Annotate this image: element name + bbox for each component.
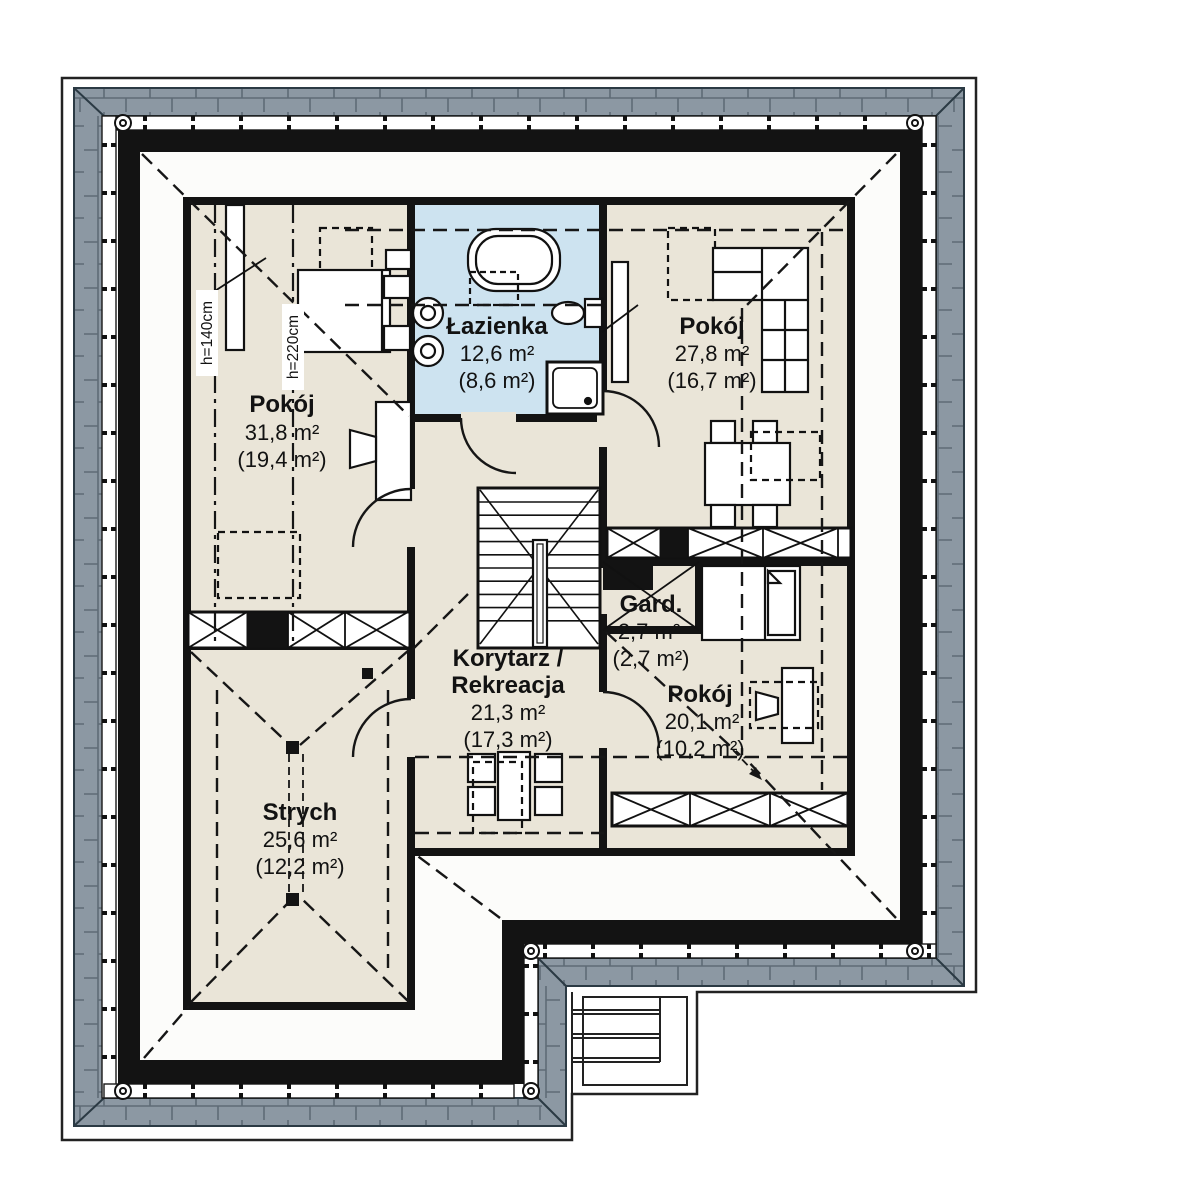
rafter-tick	[431, 1084, 435, 1089]
rafter-tick	[931, 143, 936, 147]
label-korytarz-area-net: (17,3 m²)	[463, 727, 552, 752]
rafter-tick	[102, 479, 107, 483]
label-gard-area-net: (2,7 m²)	[613, 646, 690, 671]
wardrobe-band-pokoj-1	[188, 612, 410, 648]
rafter-tick	[524, 1060, 529, 1064]
rafter-tick	[575, 125, 579, 130]
rafter-tick	[922, 383, 927, 387]
floor-plan-page: Pokój 31,8 m² (19,4 m²) Łazienka 12,6 m²…	[0, 0, 1200, 1200]
toilet-icon	[552, 299, 602, 327]
rafter-tick	[922, 719, 927, 723]
rafter-tick	[102, 863, 107, 867]
downspout-icon	[907, 943, 923, 959]
rafter-tick	[533, 964, 538, 968]
rafter-tick	[922, 287, 927, 291]
rafter-tick	[831, 953, 835, 958]
rafter-tick	[719, 125, 723, 130]
rafter-tick	[102, 959, 107, 963]
label-pokoj-3-area: 20,1 m²	[665, 709, 740, 734]
chair-icon	[756, 692, 778, 720]
rafter-tick	[735, 953, 739, 958]
rafter-tick	[143, 1084, 147, 1089]
rafter-tick	[102, 815, 107, 819]
rafter-tick	[931, 575, 936, 579]
rafter-tick	[479, 125, 483, 130]
rafter-tick	[922, 767, 927, 771]
rafter-tick	[383, 116, 387, 121]
staircase	[478, 488, 600, 648]
rafter-tick	[922, 527, 927, 531]
rafter-tick	[931, 527, 936, 531]
rafter-tick	[922, 623, 927, 627]
annotation-h140: h=140cm	[199, 301, 216, 365]
label-lazienka-area-net: (8,6 m²)	[459, 368, 536, 393]
rafter-tick	[639, 944, 643, 949]
rafter-tick	[239, 1093, 243, 1098]
rafter-tick	[543, 944, 547, 949]
stair-railing	[537, 544, 543, 643]
rafter-tick	[431, 1093, 435, 1098]
rafter-tick	[102, 719, 107, 723]
rafter-tick	[111, 623, 116, 627]
rafter-tick	[111, 575, 116, 579]
rafter-tick	[815, 125, 819, 130]
rafter-tick	[927, 953, 931, 958]
rafter-tick	[191, 1093, 195, 1098]
rafter-tick	[922, 191, 927, 195]
washbasin-icon	[413, 298, 443, 328]
rafter-tick	[922, 911, 927, 915]
rafter-tick	[111, 671, 116, 675]
rafter-tick	[102, 143, 107, 147]
rafter-tick	[111, 767, 116, 771]
annotation-h220: h=220cm	[285, 315, 302, 379]
rafter-tick	[239, 1084, 243, 1089]
rafter-tick	[591, 944, 595, 949]
chair-icon	[711, 505, 735, 527]
rafter-tick	[623, 125, 627, 130]
downspout-icon	[115, 115, 131, 131]
rafter-tick	[931, 239, 936, 243]
rafter-tick	[111, 1055, 116, 1059]
label-pokoj-1-area-net: (19,4 m²)	[237, 447, 326, 472]
rafter-tick	[111, 863, 116, 867]
label-strych-area-net: (12,2 m²)	[255, 854, 344, 879]
rafter-tick	[767, 116, 771, 121]
rafter-tick	[102, 1055, 107, 1059]
rafter-tick	[102, 383, 107, 387]
rafter-tick	[931, 719, 936, 723]
rafter-tick	[383, 1084, 387, 1089]
wardrobe-band-pokoj-3	[612, 793, 848, 826]
label-korytarz-name2: Rekreacja	[451, 672, 565, 699]
rafter-tick	[102, 575, 107, 579]
rafter-tick	[111, 431, 116, 435]
rafter-tick	[931, 911, 936, 915]
nightstand-icon	[386, 250, 411, 269]
chair-icon	[753, 505, 777, 527]
chair-icon	[350, 430, 376, 468]
rafter-tick	[524, 964, 529, 968]
downspout-icon	[523, 1083, 539, 1099]
rafter-tick	[931, 815, 936, 819]
rafter-tick	[102, 767, 107, 771]
rafter-tick	[831, 944, 835, 949]
rafter-tick	[111, 959, 116, 963]
label-pokoj-3-name: Pokój	[667, 681, 732, 708]
rafter-tick	[575, 116, 579, 121]
rafter-tick	[687, 944, 691, 949]
rafter-tick	[931, 191, 936, 195]
washbasin-icon	[413, 336, 443, 366]
rafter-tick	[102, 671, 107, 675]
rafter-tick	[931, 767, 936, 771]
rafter-tick	[102, 1007, 107, 1011]
rafter-tick	[335, 116, 339, 121]
rafter-tick	[863, 116, 867, 121]
rafter-tick	[102, 431, 107, 435]
rafter-tick	[479, 116, 483, 121]
rafter-tick	[922, 431, 927, 435]
rafter-tick	[111, 383, 116, 387]
rafter-tick	[922, 335, 927, 339]
rafter-tick	[111, 527, 116, 531]
rafter-tick	[922, 239, 927, 243]
rafter-tick	[287, 125, 291, 130]
rafter-tick	[383, 125, 387, 130]
rafter-tick	[111, 191, 116, 195]
rafter-tick	[783, 944, 787, 949]
rafter-tick	[111, 1007, 116, 1011]
label-pokoj-2-area: 27,8 m²	[675, 341, 750, 366]
rafter-tick	[815, 116, 819, 121]
rafter-tick	[102, 335, 107, 339]
rafter-tick	[931, 287, 936, 291]
rafter-tick	[719, 116, 723, 121]
rafter-tick	[533, 1060, 538, 1064]
rafter-tick	[111, 287, 116, 291]
rafter-tick	[783, 953, 787, 958]
rafter-tick	[335, 1084, 339, 1089]
chair-icon	[711, 421, 735, 443]
rafter-tick	[102, 191, 107, 195]
rafter-tick	[111, 911, 116, 915]
rafter-tick	[543, 953, 547, 958]
label-pokoj-1-area: 31,8 m²	[245, 420, 320, 445]
label-pokoj-2-area-net: (16,7 m²)	[667, 368, 756, 393]
label-gard-name: Gard.	[620, 591, 683, 618]
rafter-tick	[767, 125, 771, 130]
rafter-tick	[931, 863, 936, 867]
rafter-tick	[191, 116, 195, 121]
downspout-icon	[523, 943, 539, 959]
rafter-tick	[687, 953, 691, 958]
downspout-icon	[907, 115, 923, 131]
rafter-tick	[931, 671, 936, 675]
rafter-tick	[287, 1093, 291, 1098]
rafter-tick	[239, 125, 243, 130]
rafter-tick	[922, 479, 927, 483]
rafter-tick	[102, 287, 107, 291]
rafter-tick	[931, 335, 936, 339]
rafter-tick	[931, 623, 936, 627]
label-pokoj-1-name: Pokój	[249, 391, 314, 418]
rafter-tick	[287, 116, 291, 121]
rafter-tick	[931, 383, 936, 387]
label-lazienka-area: 12,6 m²	[460, 341, 535, 366]
rafter-tick	[111, 479, 116, 483]
rafter-tick	[102, 623, 107, 627]
rafter-tick	[931, 431, 936, 435]
shower-icon	[547, 362, 603, 414]
rafter-tick	[143, 125, 147, 130]
rafter-tick	[623, 116, 627, 121]
rafter-tick	[639, 953, 643, 958]
rafter-tick	[479, 1084, 483, 1089]
rafter-tick	[111, 239, 116, 243]
rafter-tick	[524, 1012, 529, 1016]
rafter-tick	[527, 116, 531, 121]
stool-icon	[535, 787, 562, 815]
wardrobe-band-pokoj-2	[607, 528, 851, 558]
rafter-tick	[879, 944, 883, 949]
rafter-tick	[287, 1084, 291, 1089]
rafter-tick	[479, 1093, 483, 1098]
rafter-tick	[191, 1084, 195, 1089]
label-lazienka-name: Łazienka	[446, 313, 548, 340]
rafter-tick	[111, 815, 116, 819]
rafter-tick	[143, 1093, 147, 1098]
label-pokoj-3-area-net: (10,2 m²)	[655, 736, 744, 761]
label-korytarz-name1: Korytarz /	[453, 645, 564, 672]
rafter-tick	[111, 335, 116, 339]
rafter-tick	[191, 125, 195, 130]
rafter-tick	[533, 1012, 538, 1016]
rafter-tick	[102, 527, 107, 531]
rafter-tick	[671, 125, 675, 130]
rafter-tick	[335, 1093, 339, 1098]
rafter-tick	[922, 671, 927, 675]
rafter-tick	[671, 116, 675, 121]
label-gard-area: 2,7 m²	[618, 619, 680, 644]
rafter-tick	[335, 125, 339, 130]
rafter-tick	[431, 125, 435, 130]
rafter-tick	[111, 719, 116, 723]
rafter-tick	[927, 944, 931, 949]
label-korytarz-area: 21,3 m²	[471, 700, 546, 725]
rafter-tick	[143, 116, 147, 121]
rafter-tick	[111, 143, 116, 147]
rafter-tick	[922, 143, 927, 147]
room-strych	[187, 646, 411, 1006]
rafter-tick	[591, 953, 595, 958]
rafter-tick	[922, 815, 927, 819]
floor-plan-drawing: Pokój 31,8 m² (19,4 m²) Łazienka 12,6 m²…	[0, 0, 1200, 1200]
rafter-tick	[102, 239, 107, 243]
single-bed-icon	[702, 566, 800, 640]
rafter-tick	[735, 944, 739, 949]
rafter-tick	[431, 116, 435, 121]
rafter-tick	[931, 479, 936, 483]
label-strych-name: Strych	[263, 799, 338, 826]
rafter-tick	[922, 863, 927, 867]
rafter-tick	[239, 116, 243, 121]
rafter-tick	[102, 911, 107, 915]
rafter-tick	[383, 1093, 387, 1098]
rafter-tick	[527, 125, 531, 130]
label-pokoj-2-name: Pokój	[679, 313, 744, 340]
downspout-icon	[115, 1083, 131, 1099]
rafter-tick	[922, 575, 927, 579]
label-strych-area: 25,6 m²	[263, 827, 338, 852]
rafter-tick	[863, 125, 867, 130]
rafter-tick	[879, 953, 883, 958]
